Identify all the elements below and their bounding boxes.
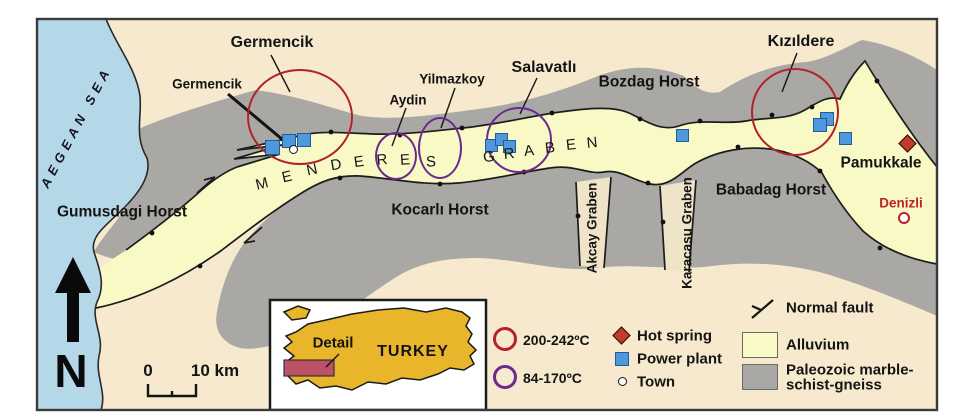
graben-letter: G [482, 149, 495, 165]
label-gumusdagi-horst: Gumusdagi Horst [57, 204, 187, 220]
label-kizildere: Kızıldere [768, 34, 835, 50]
north-label: N [54, 344, 87, 398]
inset-country-label: TURKEY [377, 343, 449, 361]
label-bozdag-horst: Bozdag Horst [599, 74, 700, 90]
town-icon [618, 377, 627, 386]
power-plant-marker [813, 118, 827, 132]
high-temp-ring-icon [493, 327, 517, 351]
label-pamukkale: Pamukkale [841, 155, 922, 171]
alluvium-swatch [742, 332, 778, 358]
graben-letter: E [353, 154, 365, 170]
power-plant-marker [265, 140, 280, 155]
graben-letter: N [586, 135, 598, 151]
power-plant-icon [615, 352, 629, 366]
paleozoic-label-line1: Paleozoic marble- [786, 363, 914, 378]
label-salavatli: Salavatlı [512, 60, 577, 76]
graben-letter: B [544, 140, 556, 156]
paleozoic-label-line2: schist-gneiss [786, 378, 882, 393]
graben-letter: D [329, 157, 342, 174]
low-temp-ring-icon [493, 365, 517, 389]
label-denizli: Denizli [879, 196, 923, 210]
power-plant-marker [676, 129, 689, 142]
inset-detail-label: Detail [313, 335, 354, 352]
power-plant-label: Power plant [637, 352, 722, 367]
germencik-temp-ring [247, 69, 353, 165]
town-label: Town [637, 375, 675, 390]
label-karacasu-graben: Karacasu Graben [680, 177, 694, 289]
graben-letter: S [426, 154, 437, 169]
paleozoic-swatch [742, 364, 778, 390]
figure-stage: 200-242ºC 84-170ºC Hot spring Power plan… [0, 0, 966, 419]
graben-letter: E [399, 152, 410, 168]
label-germencik-town: Germencik [172, 77, 242, 91]
yilmazkoy-temp-ring [418, 117, 462, 179]
scale-zero-label: 0 [143, 361, 152, 381]
label-germencik-field: Germencik [231, 35, 314, 51]
detail-rect [284, 360, 334, 376]
alluvium-label: Alluvium [786, 338, 849, 353]
graben-letter: R [503, 146, 515, 162]
graben-letter: E [565, 137, 577, 153]
graben-letter: A [523, 143, 535, 159]
hot-spring-label: Hot spring [637, 329, 712, 344]
power-plant-marker [297, 133, 311, 147]
label-yilmazkoy: Yilmazkoy [419, 72, 485, 86]
town-marker [289, 145, 298, 154]
label-babadag-horst: Babadag Horst [716, 182, 826, 198]
denizli-town-marker [898, 212, 910, 224]
scale-distance-label: 10 km [191, 361, 239, 381]
normal-fault-label: Normal fault [786, 301, 874, 316]
label-akcay-graben: Akcay Graben [585, 183, 599, 274]
label-aydin: Aydin [390, 93, 427, 107]
low-temp-label: 84-170ºC [523, 371, 582, 385]
graben-letter: R [376, 152, 388, 168]
label-kocarli-horst: Kocarlı Horst [391, 202, 488, 218]
power-plant-marker [839, 132, 852, 145]
high-temp-label: 200-242ºC [523, 333, 590, 347]
